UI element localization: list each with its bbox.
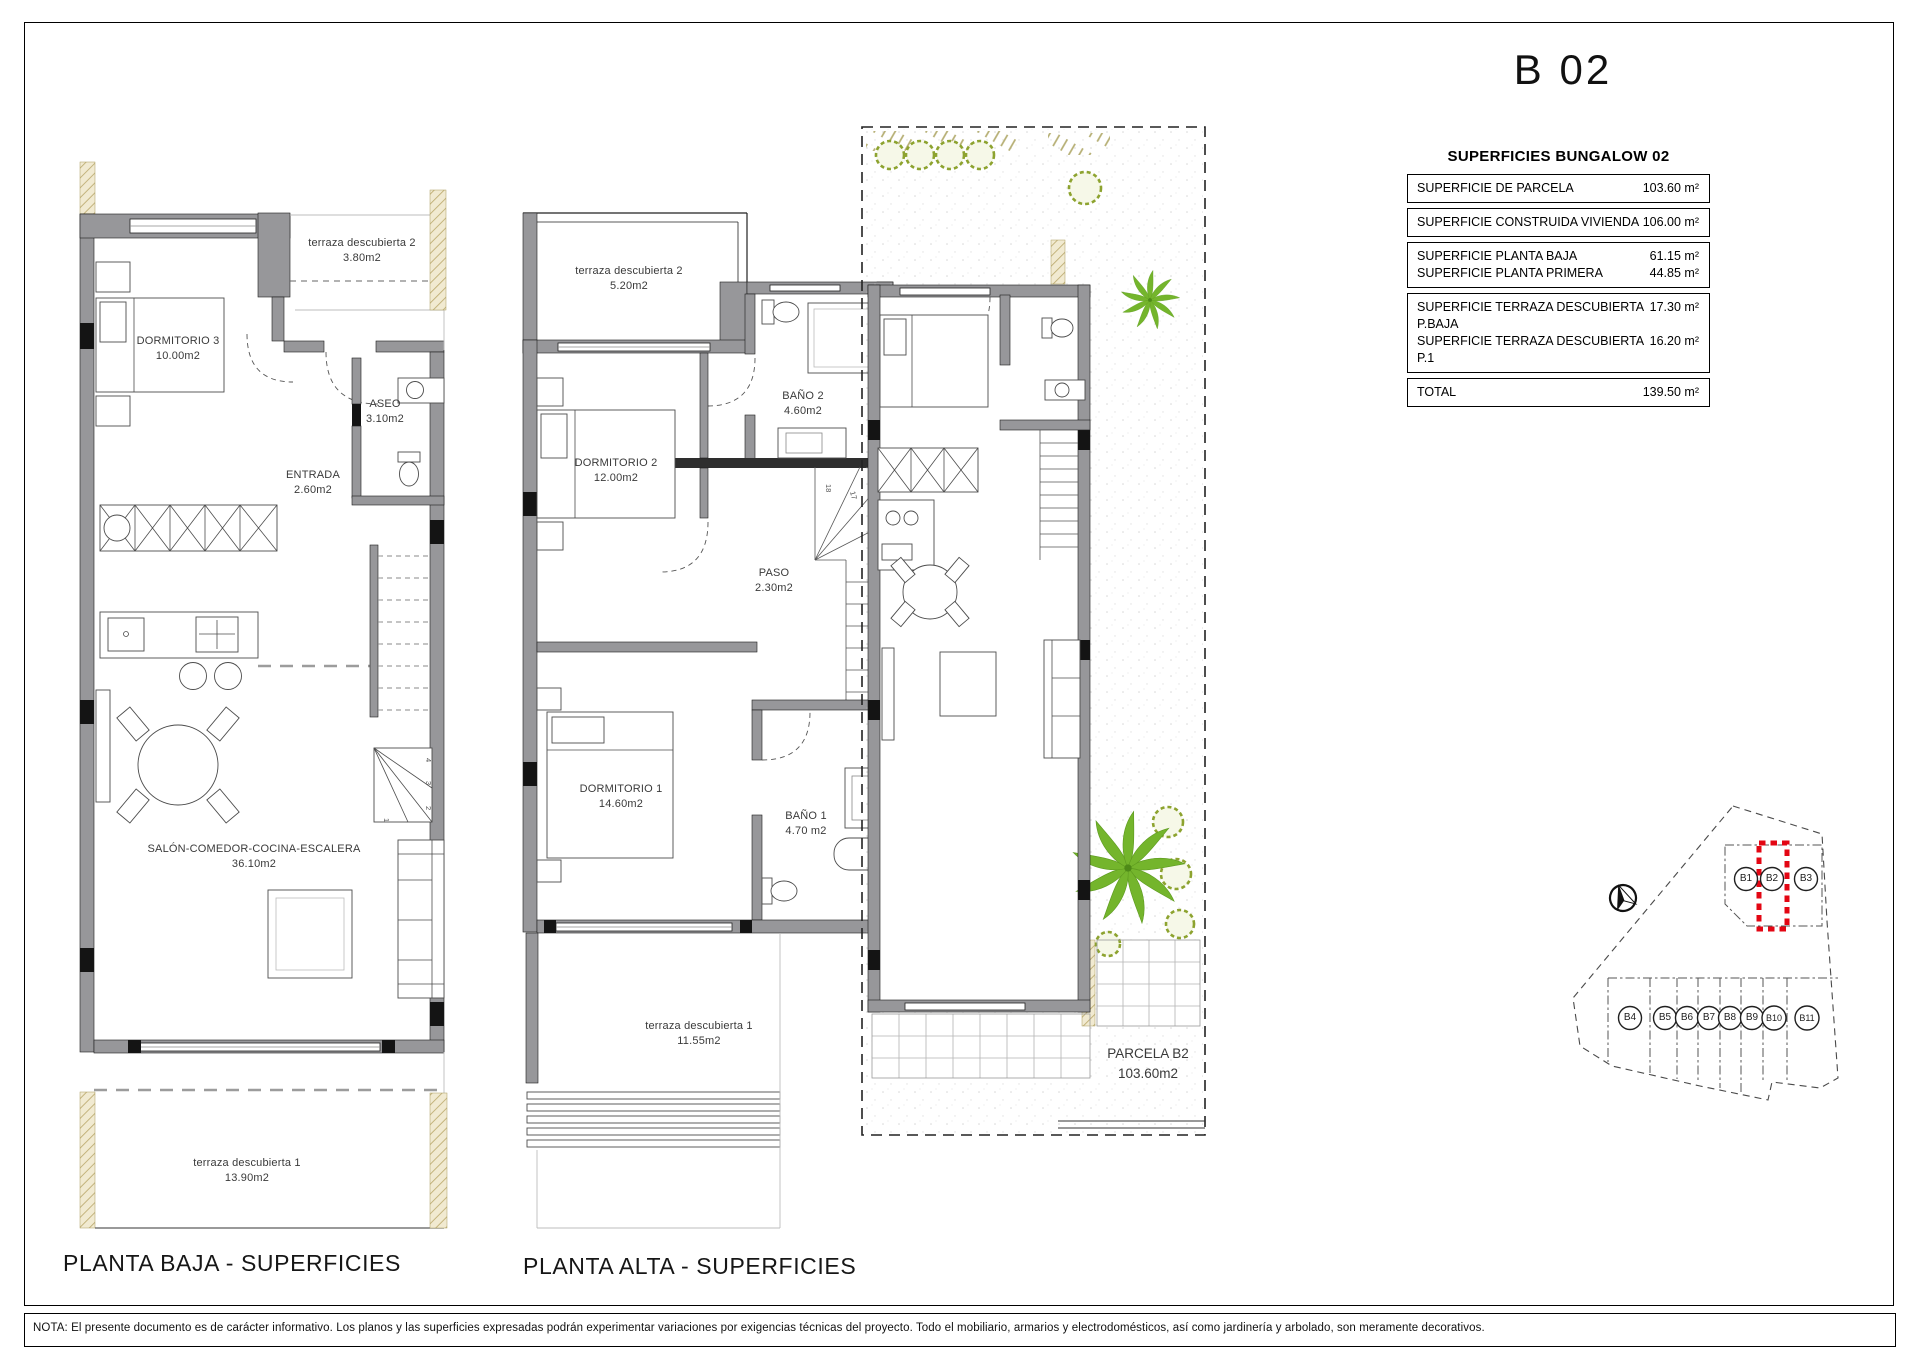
parcela-label: PARCELA B2 103.60m2 [1078, 1044, 1218, 1084]
site-plan-drawing [1573, 806, 1838, 1100]
site-unit-b2: B2 [1759, 873, 1785, 884]
room-label-bano1: BAÑO 1 4.70 m2 [756, 809, 856, 839]
row-value: 44.85 m² [1650, 265, 1699, 282]
room-label-paso: PASO 2.30m2 [724, 566, 824, 596]
room-label-terraza1-baja: terraza descubierta 1 13.90m2 [157, 1156, 337, 1186]
table-group-parcela: SUPERFICIE DE PARCELA103.60 m² [1407, 174, 1710, 203]
table-group-plantas: SUPERFICIE PLANTA BAJA61.15 m² SUPERFICI… [1407, 242, 1710, 288]
room-label-aseo: ASEO 3.10m2 [345, 397, 425, 427]
row-label: SUPERFICIE PLANTA BAJA [1417, 248, 1577, 265]
room-label-terraza2-baja: terraza descubierta 2 3.80m2 [272, 236, 452, 266]
svg-text:4: 4 [424, 758, 433, 762]
row-label: TOTAL [1417, 384, 1456, 401]
room-label-salon: SALÓN-COMEDOR-COCINA-ESCALERA 36.10m2 [114, 842, 394, 872]
room-label-bano2: BAÑO 2 4.60m2 [753, 389, 853, 419]
site-unit-b10: B10 [1761, 1013, 1787, 1023]
row-value: 139.50 m² [1643, 384, 1699, 401]
room-label-dormitorio3: DORMITORIO 3 10.00m2 [78, 334, 278, 364]
svg-text:17: 17 [848, 490, 859, 500]
room-label-dormitorio1: DORMITORIO 1 14.60m2 [521, 782, 721, 812]
site-unit-b3: B3 [1793, 873, 1819, 884]
row-value: 16.20 m² [1650, 333, 1699, 367]
svg-text:2: 2 [424, 806, 433, 810]
site-unit-b4: B4 [1617, 1012, 1643, 1023]
caption-planta-baja: PLANTA BAJA - SUPERFICIES [63, 1250, 401, 1277]
plan-alta-drawing: 18 17 16 15 14 13 12 11 10 [430, 190, 893, 1228]
row-label: SUPERFICIE TERRAZA DESCUBIERTA P.BAJA [1417, 299, 1650, 333]
room-label-terraza1-alta: terraza descubierta 1 11.55m2 [609, 1019, 789, 1049]
north-compass-icon [1606, 880, 1640, 914]
site-unit-b11: B11 [1794, 1013, 1820, 1023]
svg-text:1: 1 [382, 818, 391, 822]
row-label: SUPERFICIE PLANTA PRIMERA [1417, 265, 1603, 282]
table-group-total: TOTAL139.50 m² [1407, 378, 1710, 407]
page-title: B 02 [1478, 46, 1648, 94]
row-label: SUPERFICIE TERRAZA DESCUBIERTA P.1 [1417, 333, 1650, 367]
row-label: SUPERFICIE DE PARCELA [1417, 180, 1574, 197]
surface-areas-table: SUPERFICIES BUNGALOW 02 SUPERFICIE DE PA… [1407, 148, 1710, 412]
plan-parcela-drawing [862, 127, 1205, 1135]
table-heading: SUPERFICIES BUNGALOW 02 [1407, 148, 1710, 165]
row-value: 17.30 m² [1650, 299, 1699, 333]
svg-text:3: 3 [424, 781, 433, 785]
table-group-terrazas: SUPERFICIE TERRAZA DESCUBIERTA P.BAJA17.… [1407, 293, 1710, 373]
row-value: 106.00 m² [1643, 214, 1699, 231]
plan-baja-drawing: 4 3 2 1 [80, 162, 444, 1228]
row-value: 103.60 m² [1643, 180, 1699, 197]
disclaimer-note: NOTA: El presente documento es de caráct… [24, 1313, 1896, 1347]
row-value: 61.15 m² [1650, 248, 1699, 265]
plan-sheet: 4 3 2 1 [0, 0, 1920, 1357]
room-label-entrada: ENTRADA 2.60m2 [263, 468, 363, 498]
room-label-dormitorio2: DORMITORIO 2 12.00m2 [516, 456, 716, 486]
caption-planta-alta: PLANTA ALTA - SUPERFICIES [523, 1253, 856, 1280]
row-label: SUPERFICIE CONSTRUIDA VIVIENDA [1417, 214, 1639, 231]
site-unit-b1: B1 [1733, 873, 1759, 884]
svg-text:18: 18 [824, 484, 833, 492]
room-label-terraza2-alta: terraza descubierta 2 5.20m2 [539, 264, 719, 294]
table-group-construida: SUPERFICIE CONSTRUIDA VIVIENDA106.00 m² [1407, 208, 1710, 237]
